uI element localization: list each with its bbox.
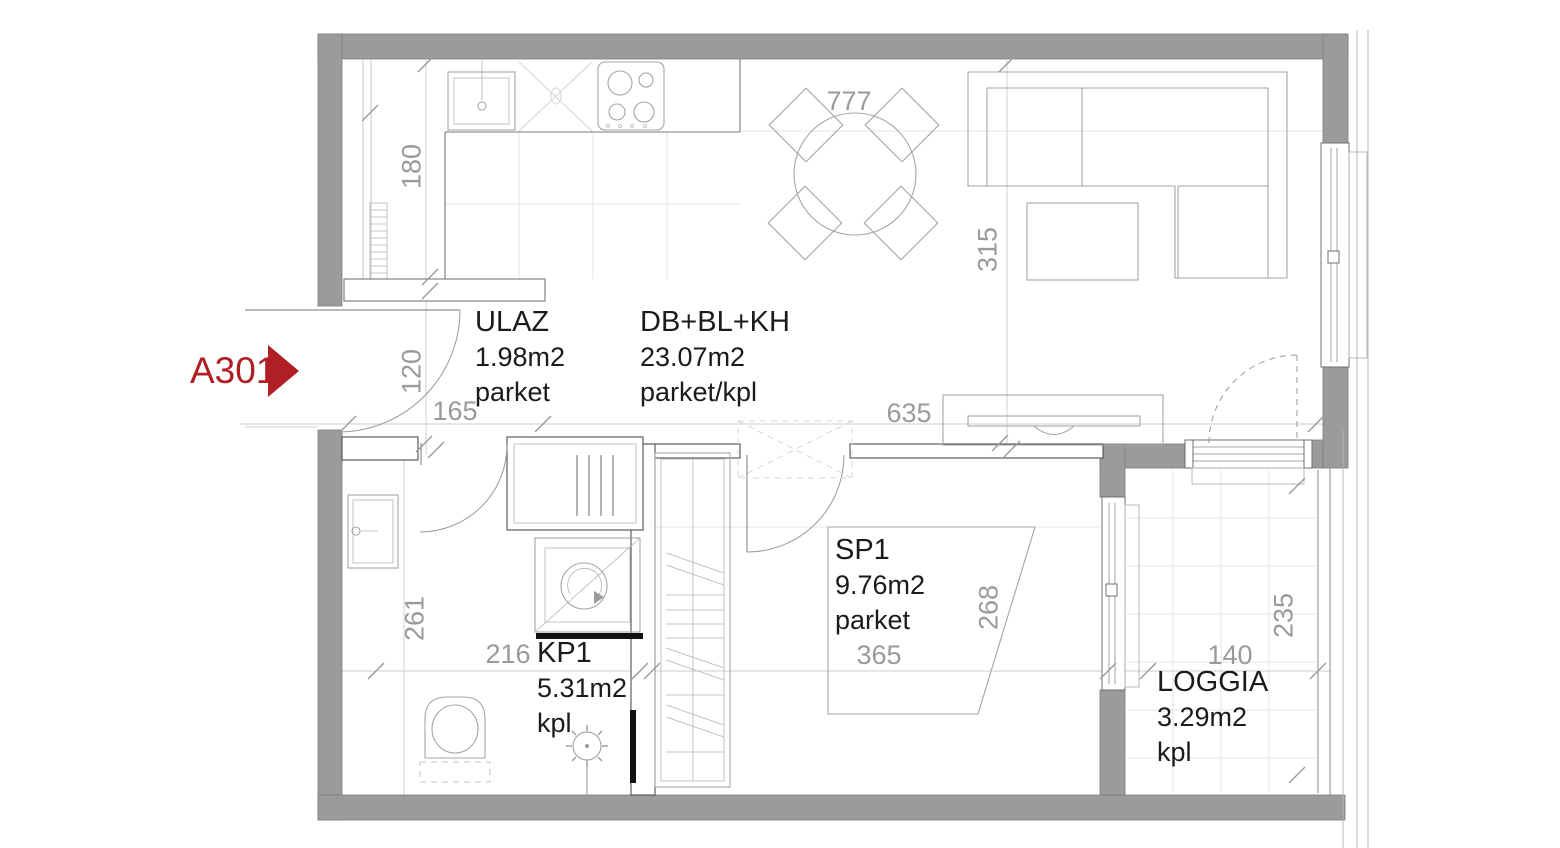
washbasin-symbol — [348, 495, 398, 568]
dim-living-width: 635 — [867, 398, 951, 429]
room-floor: parket — [835, 607, 925, 634]
room-floor: kpl — [537, 710, 627, 737]
tv-unit-symbol — [943, 395, 1163, 445]
dim-dining-width: 777 — [807, 86, 891, 117]
room-label-ulaz: ULAZ 1.98m2 parket — [475, 308, 565, 406]
room-label-loggia: LOGGIA 3.29m2 kpl — [1157, 668, 1268, 766]
room-label-sp1: SP1 9.76m2 parket — [835, 536, 925, 634]
dim-kitchen-depth: 180 — [397, 125, 428, 209]
coffee-table-symbol — [1027, 203, 1138, 280]
bedroom-window — [1102, 497, 1139, 690]
room-area: 3.29m2 — [1157, 704, 1268, 731]
room-name: KP1 — [537, 639, 627, 668]
radiator-symbol — [370, 203, 387, 280]
floor-plan: A301 ULAZ 1.98m2 parket DB+BL+KH 23.07m2… — [0, 0, 1560, 848]
toilet-symbol — [420, 697, 490, 782]
dim-living-depth: 315 — [973, 208, 1004, 292]
room-label-living: DB+BL+KH 23.07m2 parket/kpl — [640, 308, 790, 406]
room-name: LOGGIA — [1157, 668, 1268, 697]
room-floor: parket/kpl — [640, 379, 790, 406]
overhead-cabinet-dashed — [738, 421, 852, 478]
room-area: 5.31m2 — [537, 675, 627, 702]
shower-symbol — [535, 538, 640, 632]
sofa-symbol — [968, 72, 1287, 278]
floor-plan-drawing — [0, 0, 1560, 848]
dim-sp1-depth: 268 — [974, 566, 1005, 650]
room-label-kp1: KP1 5.31m2 kpl — [537, 639, 627, 737]
room-name: ULAZ — [475, 308, 565, 337]
room-name: DB+BL+KH — [640, 308, 790, 337]
unit-label: A301 — [190, 350, 276, 392]
bathroom-door-arc — [420, 443, 507, 532]
room-area: 1.98m2 — [475, 344, 565, 371]
room-floor: kpl — [1157, 739, 1268, 766]
sink-symbol — [448, 60, 515, 130]
dim-sp1-width: 365 — [837, 640, 921, 671]
corner-unit-symbol — [519, 62, 592, 131]
loggia-door-window — [1185, 440, 1312, 484]
living-room-window — [1321, 143, 1367, 367]
room-area: 23.07m2 — [640, 344, 790, 371]
dim-kp1-depth: 261 — [400, 577, 431, 661]
balcony-door-arc — [1209, 355, 1297, 443]
dim-kp1-width: 216 — [466, 639, 550, 670]
room-name: SP1 — [835, 536, 925, 565]
dim-entry-length: 165 — [413, 396, 497, 427]
kitchen-bench-symbol — [344, 279, 545, 301]
dim-loggia-depth: 235 — [1269, 574, 1300, 658]
loggia-railing — [1318, 468, 1330, 795]
dim-loggia-width: 140 — [1188, 640, 1272, 671]
bedroom-door-arc — [747, 455, 844, 552]
room-area: 9.76m2 — [835, 572, 925, 599]
washing-machine-niche — [507, 437, 643, 530]
cooktop-symbol — [598, 62, 664, 130]
wardrobe-symbol — [655, 453, 730, 787]
